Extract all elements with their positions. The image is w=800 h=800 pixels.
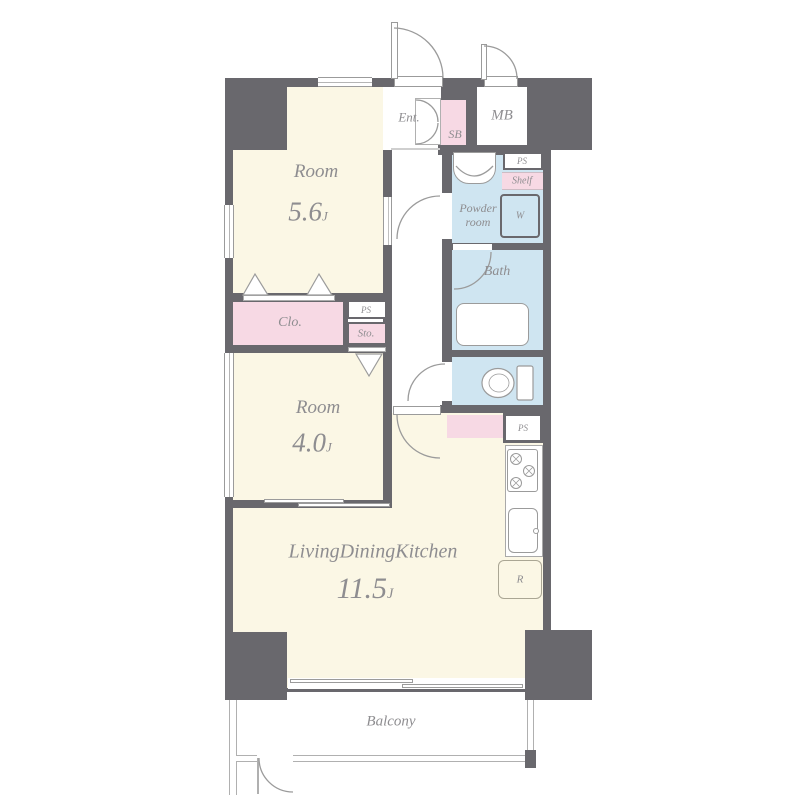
closet-folding-door-icon — [307, 274, 332, 295]
shoe-box-door-arc-bottom — [416, 123, 438, 144]
meter-box-label: MB — [491, 107, 513, 124]
closet-folding-door-icon — [243, 274, 268, 295]
pipe-shaft-label-kitchen: PS — [518, 423, 528, 433]
storage-label: Sto. — [358, 328, 375, 341]
entrance-door-arc — [394, 28, 443, 78]
shoe-box-label: SB — [448, 128, 461, 142]
washing-machine-label: W — [516, 210, 524, 222]
size-value: 4.0 — [292, 427, 326, 457]
bedroom2-size: 4.0J — [292, 427, 332, 458]
balcony-label: Balcony — [366, 713, 415, 730]
balcony-door-arc — [259, 758, 293, 792]
floor-plan: Room 5.6J Room 4.0J LivingDiningKitchen … — [0, 0, 800, 800]
closet-label: Clo. — [278, 315, 302, 331]
bedroom1-size: 5.6J — [288, 196, 328, 227]
toilet-tank-icon — [517, 366, 533, 400]
bedroom1-label: Room — [294, 161, 338, 183]
refrigerator-label: R — [517, 574, 524, 587]
entrance-label: Ent. — [398, 111, 419, 126]
shelf-label: Shelf — [512, 175, 532, 187]
size-unit: J — [322, 208, 328, 223]
sink-faucet-icon — [534, 529, 539, 534]
storage-folding-door-icon — [356, 354, 382, 376]
bath-label: Bath — [484, 264, 510, 280]
powder-room-label: Powder room — [449, 202, 507, 230]
size-value: 11.5 — [337, 572, 387, 605]
toilet-door-arc — [408, 364, 445, 401]
ldk-size: 11.5J — [337, 572, 394, 607]
pipe-shaft-label-top: PS — [517, 156, 527, 166]
pipe-shaft-label-mid: PS — [361, 305, 371, 315]
size-unit: J — [326, 439, 332, 454]
mb-door-arc — [484, 46, 517, 79]
powder-room-door-arc — [397, 196, 440, 239]
ldk-door-arc — [397, 415, 440, 458]
washbasin-bowl-line — [456, 166, 493, 176]
bedroom2-label: Room — [296, 397, 340, 419]
ldk-label: LivingDiningKitchen — [289, 541, 458, 564]
size-unit: J — [387, 586, 393, 602]
size-value: 5.6 — [288, 196, 322, 226]
